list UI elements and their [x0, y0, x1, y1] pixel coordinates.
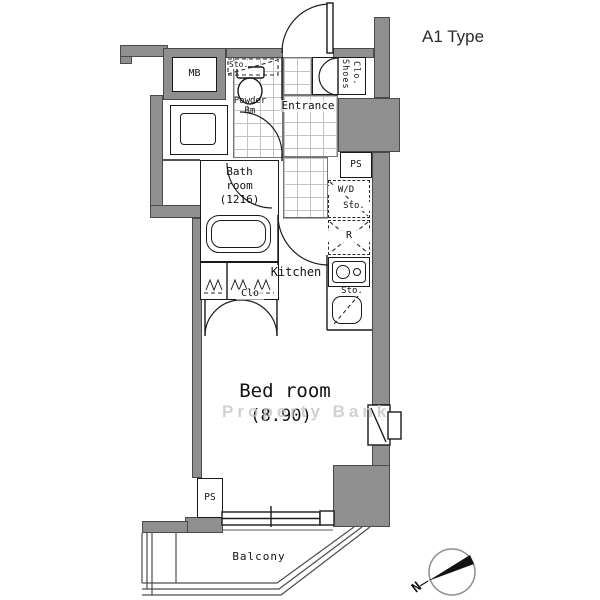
- kitchen-storage-label: Sto.: [337, 287, 367, 296]
- north-label: N: [409, 579, 425, 596]
- powder-door-arc: [240, 112, 282, 154]
- shoes-closet-label-2: Clo.: [351, 61, 361, 85]
- bath-room-label-2: room: [200, 180, 279, 192]
- closet-door-arc-left: [205, 300, 241, 336]
- powder-storage-label: Sto.: [229, 61, 248, 69]
- bedroom-label: Bed room: [230, 382, 340, 402]
- window-end-post: [320, 511, 334, 525]
- kitchen-door-arc: [278, 215, 328, 265]
- compass-icon: N: [409, 549, 475, 596]
- entrance-label: Entrance: [280, 100, 336, 112]
- bath-room-size-label: (1216): [200, 194, 279, 206]
- kitchen-label: Kitchen: [268, 266, 324, 279]
- plan-type-label: A1 Type: [422, 27, 484, 47]
- shoes-door-arc-top: [319, 58, 338, 77]
- washer-dryer-label-1: W/D: [328, 186, 364, 195]
- closet-door-arc-right: [241, 300, 277, 336]
- washer-dryer-label-2: Sto.: [336, 202, 372, 211]
- powder-room-label-2: Rm: [226, 107, 274, 116]
- refrigerator-label: R: [328, 231, 370, 242]
- plan-linework: N: [0, 0, 600, 600]
- front-door-leaf: [327, 3, 333, 53]
- watermark: Property Bank: [222, 402, 390, 422]
- closet-label: Clo: [236, 289, 264, 300]
- hanger-icon: [206, 280, 222, 290]
- bath-room-label-1: Bath: [200, 166, 279, 178]
- balcony-label: Balcony: [228, 551, 290, 563]
- shoes-door-arc-bottom: [319, 77, 338, 95]
- shoes-closet-label-1: Shoes: [340, 59, 350, 90]
- front-door-arc: [282, 4, 330, 53]
- floor-plan: MB PS PS: [0, 0, 600, 600]
